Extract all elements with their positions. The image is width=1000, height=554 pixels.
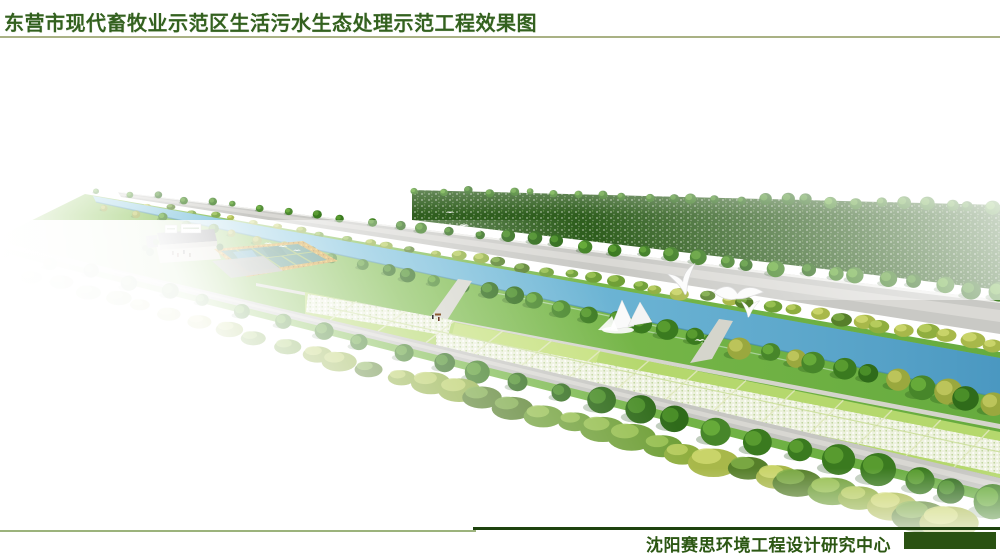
- footer-divider-dark: [473, 527, 1000, 530]
- title-divider: [0, 36, 1000, 38]
- credit-block: [904, 532, 996, 549]
- page-title: 东营市现代畜牧业示范区生活污水生态处理示范工程效果图: [4, 7, 537, 36]
- page: 东营市现代畜牧业示范区生活污水生态处理示范工程效果图 沈阳赛思环境工程设计研究中…: [0, 0, 1000, 554]
- rendering-scene: [0, 0, 1000, 554]
- footer-divider-light: [0, 530, 476, 532]
- credit-text: 沈阳赛思环境工程设计研究中心: [646, 531, 891, 554]
